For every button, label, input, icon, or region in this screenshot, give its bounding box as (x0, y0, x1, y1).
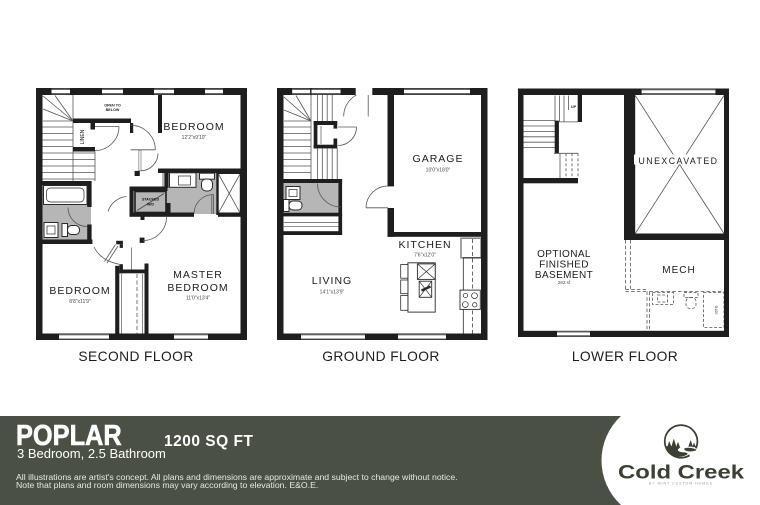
svg-text:SECOND FLOOR: SECOND FLOOR (78, 349, 193, 364)
svg-text:BEDROOM: BEDROOM (167, 282, 228, 294)
svg-text:STACKED: STACKED (142, 198, 160, 202)
svg-text:292 sf: 292 sf (558, 280, 571, 285)
svg-text:BELOW: BELOW (106, 108, 120, 112)
svg-text:UP: UP (571, 105, 577, 109)
svg-text:MASTER: MASTER (173, 269, 223, 281)
svg-text:OPTIONAL: OPTIONAL (537, 249, 591, 260)
svg-text:12'2"x9'10": 12'2"x9'10" (182, 135, 207, 141)
svg-text:KITCHEN: KITCHEN (398, 239, 451, 251)
svg-text:GARAGE: GARAGE (413, 153, 464, 165)
svg-text:MECH: MECH (662, 265, 695, 276)
svg-text:36TB: 36TB (715, 305, 719, 315)
svg-text:FINISHED: FINISHED (539, 260, 589, 271)
svg-text:BEDROOM: BEDROOM (49, 285, 110, 297)
svg-text:LINEN: LINEN (80, 129, 86, 144)
svg-text:BEDROOM: BEDROOM (163, 121, 224, 133)
svg-text:UNEXCAVATED: UNEXCAVATED (639, 156, 719, 166)
svg-text:7'6"x12'0": 7'6"x12'0" (414, 253, 436, 259)
svg-text:BY MINT CUSTOM HOMES: BY MINT CUSTOM HOMES (649, 482, 713, 486)
svg-text:10'0"x18'0": 10'0"x18'0" (426, 168, 451, 174)
svg-text:W/D: W/D (147, 203, 154, 207)
svg-text:14'1"x13'9": 14'1"x13'9" (320, 290, 345, 296)
svg-text:OPEN TO: OPEN TO (104, 104, 121, 108)
svg-text:LIVING: LIVING (312, 275, 352, 287)
svg-text:LOWER FLOOR: LOWER FLOOR (572, 349, 678, 364)
svg-text:8'8"x11'9": 8'8"x11'9" (69, 299, 91, 305)
svg-text:GROUND FLOOR: GROUND FLOOR (322, 349, 439, 364)
svg-text:11'0"x13'4": 11'0"x13'4" (186, 296, 210, 302)
svg-text:Cold Creek: Cold Creek (618, 463, 745, 484)
